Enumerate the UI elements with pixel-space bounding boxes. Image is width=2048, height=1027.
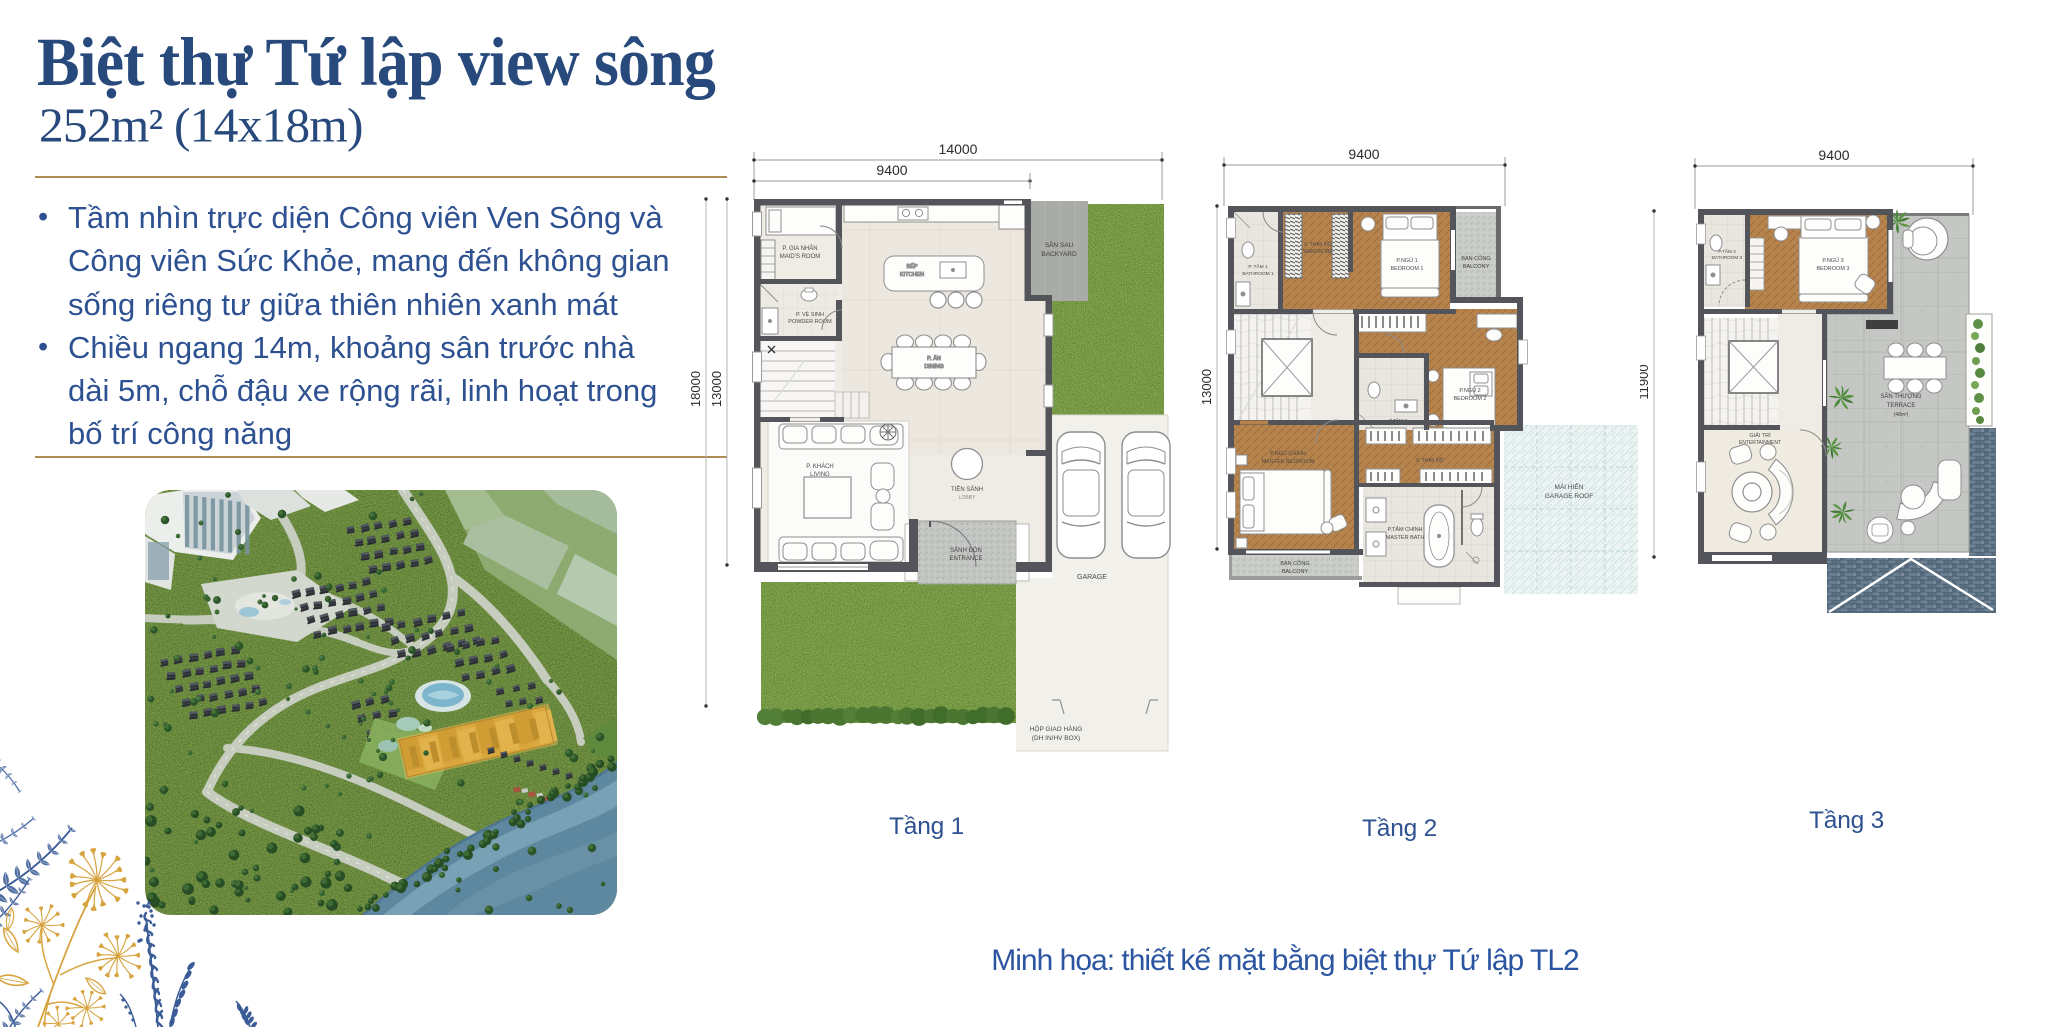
svg-text:HỘP GIAO HÀNG: HỘP GIAO HÀNG <box>1030 724 1083 733</box>
svg-text:14000: 14000 <box>939 141 978 157</box>
svg-text:P.NGỦ 2: P.NGỦ 2 <box>1459 387 1480 394</box>
svg-text:P.NGỦ 1: P.NGỦ 1 <box>1396 257 1417 264</box>
svg-text:11900: 11900 <box>1640 364 1651 399</box>
svg-text:P.TẮM 3: P.TẮM 3 <box>1718 247 1736 254</box>
svg-text:P. THAY ĐỒ: P. THAY ĐỒ <box>1416 457 1443 464</box>
svg-text:P.NGỦ 3: P.NGỦ 3 <box>1822 257 1843 264</box>
svg-text:P. ĂN: P. ĂN <box>927 355 941 362</box>
svg-text:GIẢI TRÍ: GIẢI TRÍ <box>1749 432 1771 439</box>
svg-text:TERRACE: TERRACE <box>1887 403 1916 409</box>
svg-text:WARDROBE: WARDROBE <box>1303 249 1333 255</box>
svg-text:LOBBY: LOBBY <box>959 495 976 501</box>
svg-text:BAN CÔNG: BAN CÔNG <box>1461 255 1490 262</box>
svg-text:BẾP: BẾP <box>906 263 917 270</box>
svg-text:P.NGỦ CHÍNH: P.NGỦ CHÍNH <box>1270 450 1306 457</box>
svg-text:BALCONY: BALCONY <box>1282 569 1309 575</box>
svg-text:TIỀN SẢNH: TIỀN SẢNH <box>951 486 983 493</box>
svg-text:P. GIA NHÂN: P. GIA NHÂN <box>782 245 817 252</box>
svg-text:BATHROOM 3: BATHROOM 3 <box>1712 255 1742 260</box>
svg-text:MASTER BEDROOM: MASTER BEDROOM <box>1262 459 1315 465</box>
svg-text:P. VỆ SINH: P. VỆ SINH <box>796 310 824 318</box>
svg-text:P. THAY ĐỒ: P. THAY ĐỒ <box>1304 241 1331 248</box>
svg-text:LIVING: LIVING <box>810 472 830 478</box>
svg-text:(DH IN/HV BOX): (DH IN/HV BOX) <box>1032 735 1080 742</box>
svg-text:POWDER ROOM: POWDER ROOM <box>788 319 832 325</box>
svg-text:GARAGE ROOF: GARAGE ROOF <box>1545 493 1593 500</box>
svg-text:18000: 18000 <box>688 371 703 407</box>
svg-text:SẢNH ĐÓN: SẢNH ĐÓN <box>950 547 982 554</box>
svg-text:BEDROOM 1: BEDROOM 1 <box>1390 266 1423 272</box>
svg-text:9400: 9400 <box>1818 147 1849 163</box>
svg-text:9400: 9400 <box>1348 146 1379 162</box>
svg-text:BALCONY: BALCONY <box>1463 264 1490 270</box>
svg-text:BEDROOM 3: BEDROOM 3 <box>1816 266 1849 272</box>
svg-text:DINING: DINING <box>924 364 943 370</box>
svg-text:SÂN SAU: SÂN SAU <box>1045 240 1074 249</box>
svg-text:13000: 13000 <box>709 371 724 407</box>
svg-text:9400: 9400 <box>876 162 907 178</box>
svg-text:BEDROOM 2: BEDROOM 2 <box>1453 396 1486 402</box>
svg-text:MÁI HIÊN: MÁI HIÊN <box>1555 482 1584 491</box>
svg-text:BAN CÔNG: BAN CÔNG <box>1280 560 1309 567</box>
svg-text:KITCHEN: KITCHEN <box>900 272 924 278</box>
svg-text:P.TẮM CHÍNH: P.TẮM CHÍNH <box>1387 525 1422 533</box>
svg-text:MASTER BATH: MASTER BATH <box>1386 535 1425 541</box>
svg-text:13000: 13000 <box>1199 369 1214 405</box>
svg-text:ENTRANCE: ENTRANCE <box>949 556 982 562</box>
svg-text:GARAGE: GARAGE <box>1077 574 1107 581</box>
svg-text:ENTERTAINMENT: ENTERTAINMENT <box>1739 440 1781 446</box>
svg-text:SÂN THƯỢNG: SÂN THƯỢNG <box>1880 393 1921 400</box>
svg-text:(48m²): (48m²) <box>1894 412 1909 418</box>
svg-text:BACKYARD: BACKYARD <box>1041 251 1077 258</box>
svg-text:BATHROOM 1: BATHROOM 1 <box>1242 271 1274 277</box>
svg-text:MAID'S ROOM: MAID'S ROOM <box>780 254 820 260</box>
svg-text:P. KHÁCH: P. KHÁCH <box>806 463 834 470</box>
